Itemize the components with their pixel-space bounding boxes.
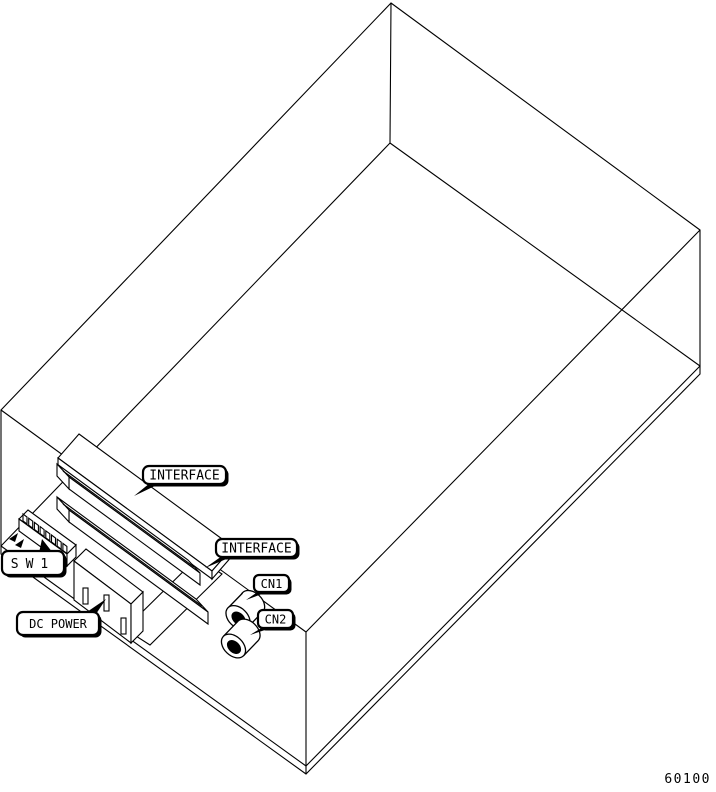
callout-cn1-label: CN1 xyxy=(261,577,283,591)
callout-interface-1-label: INTERFACE xyxy=(149,469,219,484)
figure-canvas: INTERFACE INTERFACE SW1 DC POWER CN1 CN2… xyxy=(0,0,716,792)
enclosure-diagram: INTERFACE INTERFACE SW1 DC POWER CN1 CN2… xyxy=(0,0,716,792)
callout-cn2-label: CN2 xyxy=(265,613,287,627)
callout-sw1-label: SW1 xyxy=(11,557,55,572)
module-terminal-slot-3 xyxy=(121,618,126,634)
callout-dc-power-label: DC POWER xyxy=(29,617,88,631)
module-terminal-slot-1 xyxy=(83,588,88,604)
figure-number: 60100 xyxy=(664,772,711,787)
callout-cn1: CN1 xyxy=(246,575,292,600)
module-terminal-slot-2 xyxy=(104,595,109,611)
callout-interface-2-label: INTERFACE xyxy=(221,542,291,557)
enclosure-wireframe xyxy=(1,3,700,774)
